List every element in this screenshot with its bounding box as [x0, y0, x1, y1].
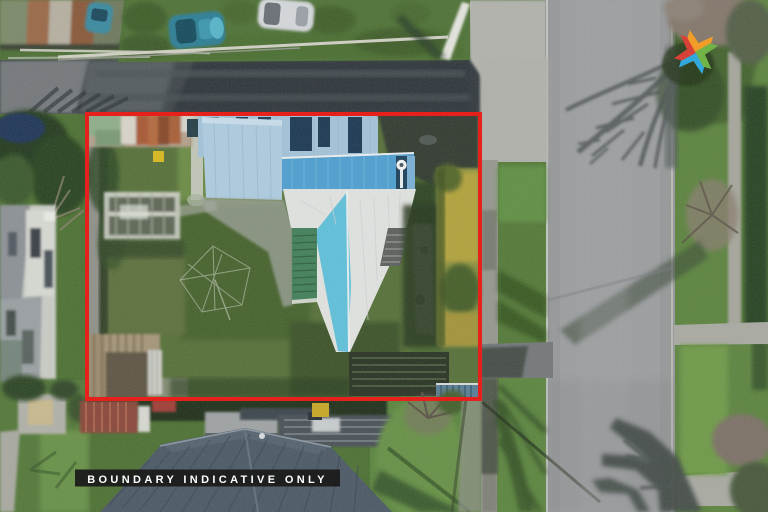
svg-text:BOUNDARY INDICATIVE ONLY: BOUNDARY INDICATIVE ONLY — [87, 474, 328, 486]
